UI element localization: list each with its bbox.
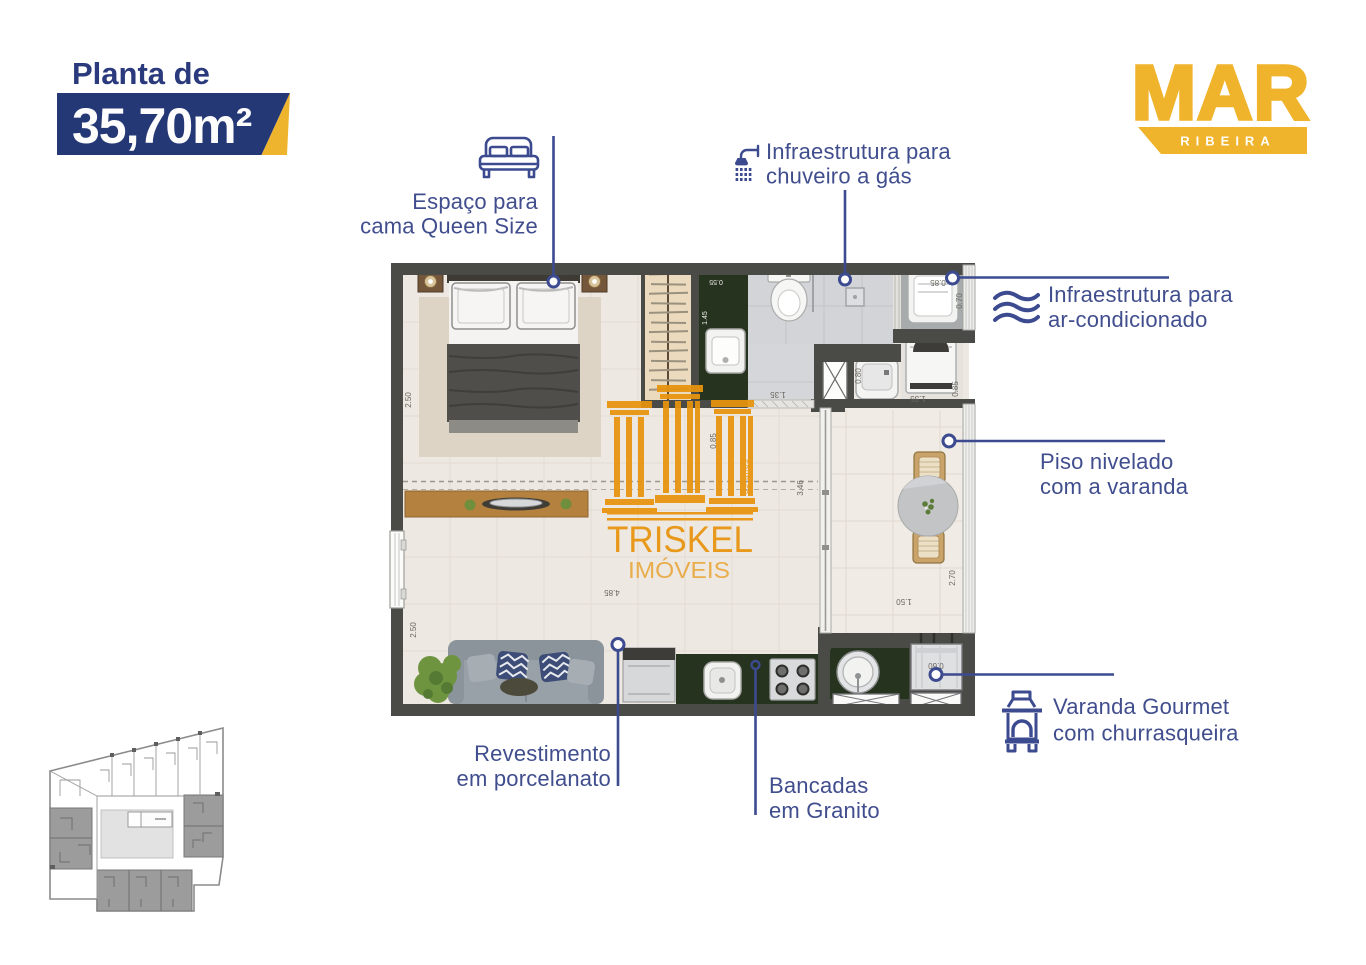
svg-text:em Granito: em Granito <box>769 798 880 823</box>
svg-text:1.35: 1.35 <box>770 390 786 399</box>
svg-text:Espaço para: Espaço para <box>412 189 538 214</box>
svg-text:0.80: 0.80 <box>854 368 863 384</box>
svg-text:com a varanda: com a varanda <box>1040 474 1189 499</box>
svg-text:2.50: 2.50 <box>404 392 413 408</box>
svg-text:4.85: 4.85 <box>604 588 620 597</box>
svg-text:Bancadas: Bancadas <box>769 773 868 798</box>
svg-text:3.46: 3.46 <box>796 480 805 496</box>
svg-text:Infraestrutura para: Infraestrutura para <box>766 139 951 164</box>
svg-text:35,70m²: 35,70m² <box>72 98 252 154</box>
svg-text:IMÓVEIS: IMÓVEIS <box>628 557 730 583</box>
svg-text:com churrasqueira: com churrasqueira <box>1053 721 1239 746</box>
svg-text:chuveiro a gás: chuveiro a gás <box>766 164 912 189</box>
svg-text:Piso nivelado: Piso nivelado <box>1040 449 1173 474</box>
svg-text:1.35: 1.35 <box>910 394 926 403</box>
svg-text:0.70: 0.70 <box>955 293 964 309</box>
svg-text:2.70: 2.70 <box>948 570 957 586</box>
svg-text:2.50: 2.50 <box>409 622 418 638</box>
svg-text:0.85: 0.85 <box>930 278 946 287</box>
svg-text:em porcelanato: em porcelanato <box>457 766 611 791</box>
svg-text:Planta de: Planta de <box>72 56 210 91</box>
svg-text:Varanda Gourmet: Varanda Gourmet <box>1053 694 1229 719</box>
svg-text:TRISKEL: TRISKEL <box>607 519 753 560</box>
svg-text:cama Queen Size: cama Queen Size <box>360 214 538 239</box>
svg-text:ar-condicionado: ar-condicionado <box>1048 307 1208 332</box>
svg-text:Infraestrutura para: Infraestrutura para <box>1048 282 1233 307</box>
svg-text:1.45: 1.45 <box>702 311 709 325</box>
svg-text:0.55: 0.55 <box>709 278 723 285</box>
svg-text:Revestimento: Revestimento <box>474 741 611 766</box>
svg-text:0.85: 0.85 <box>951 381 960 397</box>
svg-text:MAR: MAR <box>1132 50 1310 136</box>
svg-text:1.50: 1.50 <box>896 597 912 606</box>
svg-text:39 anos: 39 anos <box>741 459 750 494</box>
svg-text:RIBEIRA: RIBEIRA <box>1180 134 1275 149</box>
